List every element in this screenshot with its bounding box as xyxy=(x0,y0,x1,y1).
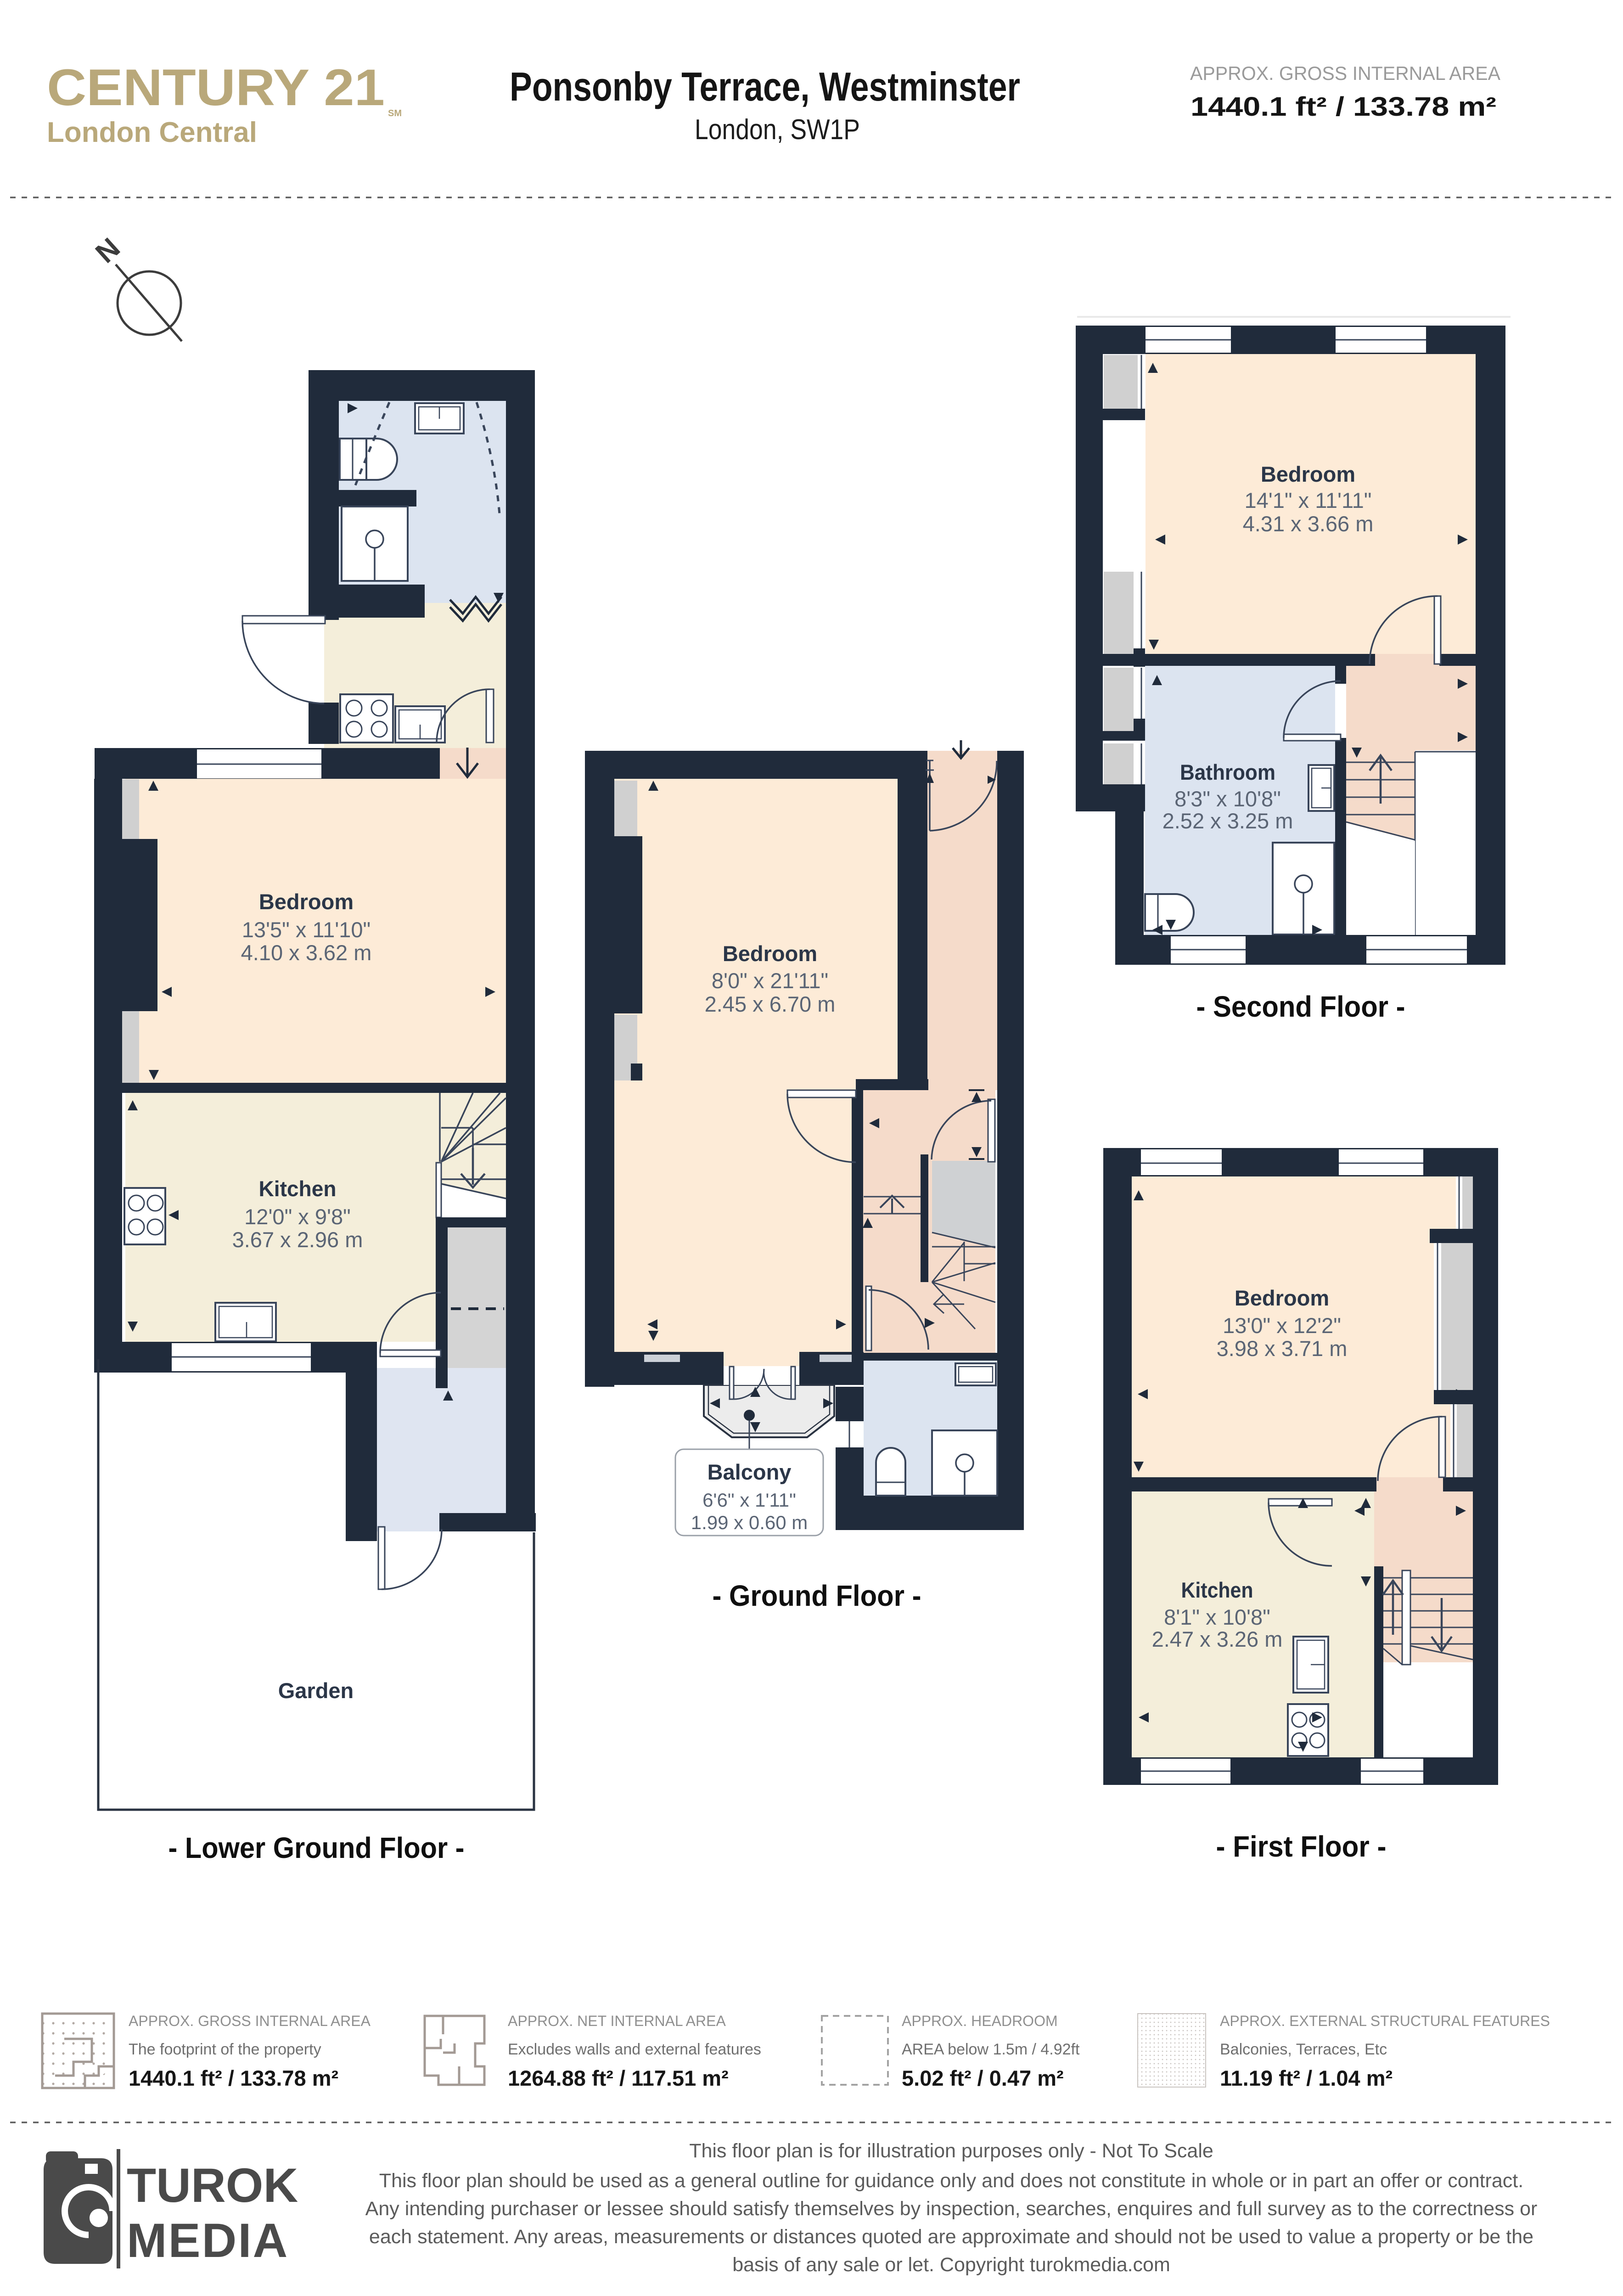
svg-text:The footprint of the property: The footprint of the property xyxy=(129,2041,321,2058)
svg-text:- Ground Floor -: - Ground Floor - xyxy=(713,1579,921,1612)
svg-text:Bedroom: Bedroom xyxy=(1235,1286,1329,1310)
svg-text:basis of any sale or let. Copy: basis of any sale or let. Copyright turo… xyxy=(732,2254,1170,2276)
svg-text:3.98 x 3.71 m: 3.98 x 3.71 m xyxy=(1217,1336,1348,1361)
svg-text:TUROK: TUROK xyxy=(127,2159,298,2212)
svg-text:Garden: Garden xyxy=(278,1678,354,1703)
svg-text:1264.88 ft² / 117.51 m²: 1264.88 ft² / 117.51 m² xyxy=(508,2066,729,2090)
svg-text:Bedroom: Bedroom xyxy=(1261,462,1355,486)
svg-text:each statement. Any areas, mea: each statement. Any areas, measurements … xyxy=(369,2226,1533,2248)
svg-text:Any intending purchaser or les: Any intending purchaser or lessee should… xyxy=(365,2198,1538,2220)
svg-text:12'0" x 9'8": 12'0" x 9'8" xyxy=(244,1204,351,1229)
svg-text:- Lower Ground Floor -: - Lower Ground Floor - xyxy=(168,1831,465,1864)
svg-text:2.52 x 3.25 m: 2.52 x 3.25 m xyxy=(1162,809,1293,833)
svg-text:Bedroom: Bedroom xyxy=(259,889,354,914)
svg-text:8'3" x 10'8": 8'3" x 10'8" xyxy=(1174,787,1281,811)
svg-text:Balcony: Balcony xyxy=(708,1460,792,1484)
svg-text:13'5" x 11'10": 13'5" x 11'10" xyxy=(242,917,371,942)
svg-text:AREA below 1.5m / 4.92ft: AREA below 1.5m / 4.92ft xyxy=(902,2041,1080,2058)
svg-text:- First Floor -: - First Floor - xyxy=(1216,1830,1387,1863)
svg-text:APPROX. GROSS INTERNAL AREA: APPROX. GROSS INTERNAL AREA xyxy=(129,2013,371,2029)
svg-text:APPROX. EXTERNAL STRUCTURAL FE: APPROX. EXTERNAL STRUCTURAL FEATURES xyxy=(1220,2013,1550,2029)
svg-text:MEDIA: MEDIA xyxy=(127,2214,289,2268)
svg-text:SM: SM xyxy=(388,108,402,118)
svg-text:Ponsonby Terrace, Westminster: Ponsonby Terrace, Westminster xyxy=(510,64,1020,109)
svg-text:APPROX. GROSS INTERNAL AREA: APPROX. GROSS INTERNAL AREA xyxy=(1190,62,1500,84)
svg-text:8'1" x 10'8": 8'1" x 10'8" xyxy=(1164,1605,1270,1629)
svg-text:N: N xyxy=(90,232,126,269)
svg-text:2.45 x 6.70 m: 2.45 x 6.70 m xyxy=(705,992,836,1016)
svg-text:1440.1 ft² / 133.78 m²: 1440.1 ft² / 133.78 m² xyxy=(129,2066,338,2090)
svg-text:8'0" x 21'11": 8'0" x 21'11" xyxy=(712,968,828,993)
svg-text:6'6" x 1'11": 6'6" x 1'11" xyxy=(702,1489,796,1511)
svg-text:Bedroom: Bedroom xyxy=(723,941,817,966)
svg-text:Kitchen: Kitchen xyxy=(259,1176,337,1201)
svg-text:3.67 x 2.96 m: 3.67 x 2.96 m xyxy=(232,1227,363,1252)
svg-text:1.99 x 0.60 m: 1.99 x 0.60 m xyxy=(691,1512,808,1533)
svg-text:1440.1 ft² / 133.78 m²: 1440.1 ft² / 133.78 m² xyxy=(1191,92,1496,122)
svg-text:13'0" x 12'2": 13'0" x 12'2" xyxy=(1223,1313,1341,1338)
svg-text:2.47 x 3.26 m: 2.47 x 3.26 m xyxy=(1152,1627,1283,1651)
svg-text:- Second Floor -: - Second Floor - xyxy=(1196,990,1405,1023)
svg-text:This floor plan is for illustr: This floor plan is for illustration purp… xyxy=(689,2140,1213,2162)
svg-text:CENTURY 21: CENTURY 21 xyxy=(47,59,385,116)
svg-text:London Central: London Central xyxy=(47,117,257,148)
svg-text:This floor plan should be used: This floor plan should be used as a gene… xyxy=(379,2170,1523,2192)
svg-text:4.10 x 3.62 m: 4.10 x 3.62 m xyxy=(241,940,372,965)
svg-text:Excludes walls and external fe: Excludes walls and external features xyxy=(508,2041,761,2058)
svg-text:London, SW1P: London, SW1P xyxy=(695,114,860,146)
svg-text:5.02 ft² / 0.47 m²: 5.02 ft² / 0.47 m² xyxy=(902,2066,1064,2090)
svg-text:14'1" x 11'11": 14'1" x 11'11" xyxy=(1245,488,1372,512)
svg-text:4.31 x 3.66 m: 4.31 x 3.66 m xyxy=(1243,512,1374,536)
svg-text:Balconies, Terraces, Etc: Balconies, Terraces, Etc xyxy=(1220,2041,1387,2058)
svg-text:Kitchen: Kitchen xyxy=(1181,1578,1253,1602)
svg-text:APPROX. NET INTERNAL AREA: APPROX. NET INTERNAL AREA xyxy=(508,2013,726,2029)
svg-text:Bathroom: Bathroom xyxy=(1180,760,1275,784)
svg-text:11.19 ft² / 1.04 m²: 11.19 ft² / 1.04 m² xyxy=(1220,2066,1393,2090)
svg-text:APPROX. HEADROOM: APPROX. HEADROOM xyxy=(902,2013,1058,2029)
